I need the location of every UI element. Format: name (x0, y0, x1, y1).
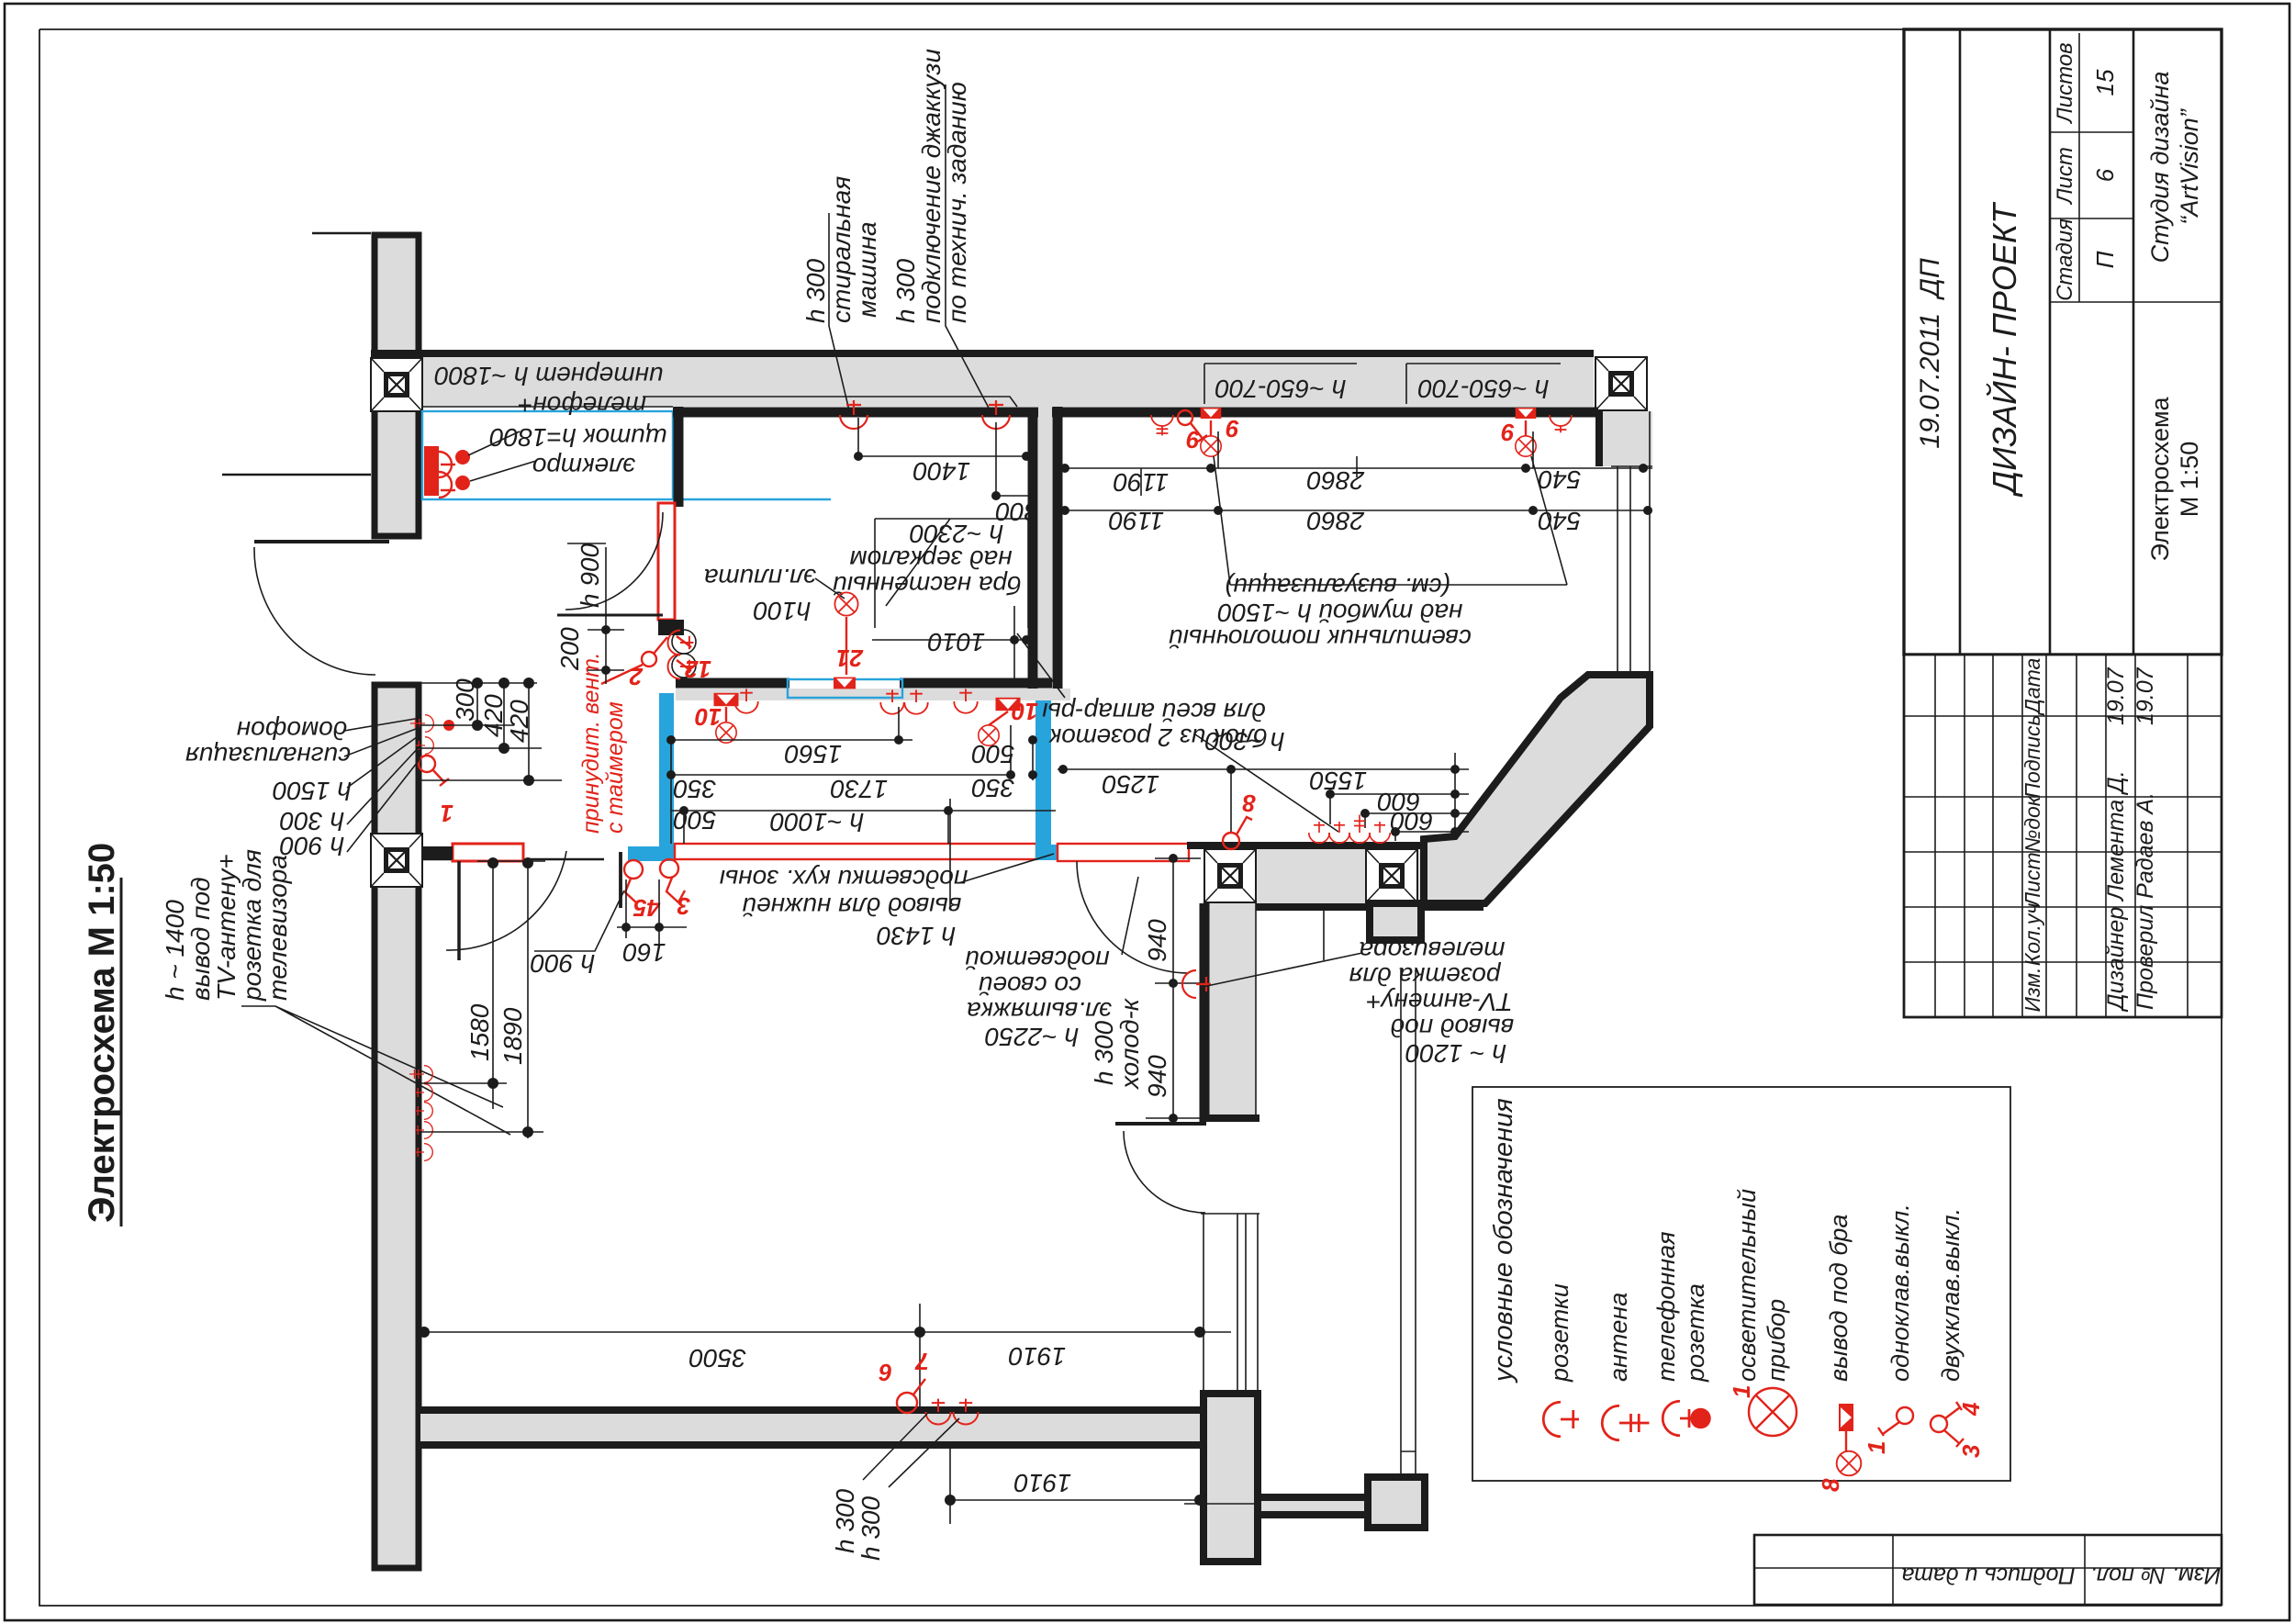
svg-text:эл.плита: эл.плита (704, 564, 816, 592)
svg-text:6: 6 (2091, 168, 2119, 182)
svg-text:розетки: розетки (1546, 1283, 1573, 1383)
svg-text:вывод под: вывод под (1391, 1014, 1515, 1042)
svg-text:1250: 1250 (1102, 770, 1159, 799)
svg-text:одноклав.выкл.: одноклав.выкл. (1886, 1204, 1914, 1382)
svg-text:для всей аппар-ры: для всей аппар-ры (1042, 698, 1266, 726)
svg-text:h ~ 1200: h ~ 1200 (1405, 1039, 1506, 1068)
svg-text:940: 940 (1143, 919, 1171, 962)
svg-text:условные обозначения: условные обозначения (1489, 1098, 1518, 1383)
svg-text:1: 1 (1863, 1441, 1890, 1454)
svg-text:домофон: домофон (237, 716, 348, 745)
svg-text:Подпись и дата: Подпись и дата (1901, 1562, 2075, 1588)
svg-text:h ~300: h ~300 (1204, 727, 1284, 756)
svg-text:бра настенный: бра настенный (833, 571, 1022, 599)
svg-text:h 900: h 900 (576, 543, 604, 608)
svg-text:1730: 1730 (830, 775, 888, 803)
svg-text:телефон+: телефон+ (518, 391, 646, 420)
svg-text:телевизора: телевизора (1360, 936, 1506, 965)
svg-text:ДИЗАЙН- ПРОЕКТ: ДИЗАЙН- ПРОЕКТ (1985, 201, 2023, 498)
svg-text:№док: №док (2021, 795, 2044, 852)
svg-text:интернет h ~1800: интернет h ~1800 (434, 362, 664, 390)
svg-text:Студия дизайна: Студия дизайна (2146, 72, 2174, 263)
svg-text:осветительный: осветительный (1733, 1189, 1761, 1382)
svg-text:7: 7 (914, 1348, 929, 1375)
svg-text:9: 9 (1501, 419, 1515, 446)
svg-text:со своей: со своей (979, 971, 1081, 1000)
svg-text:8: 8 (1817, 1478, 1844, 1492)
svg-text:1: 1 (441, 800, 453, 827)
svg-text:над тумбой h ~1500: над тумбой h ~1500 (1217, 599, 1462, 627)
svg-text:h 300: h 300 (856, 1496, 885, 1561)
svg-text:вывод под бра: вывод под бра (1825, 1215, 1853, 1382)
svg-text:вывод для нижней: вывод для нижней (742, 892, 961, 921)
svg-text:h ~1000: h ~1000 (770, 808, 864, 836)
svg-text:19.07: 19.07 (2103, 666, 2129, 725)
svg-text:600: 600 (1390, 807, 1433, 835)
svg-text:12: 12 (685, 655, 711, 683)
svg-text:8: 8 (1242, 790, 1256, 817)
svg-text:розетка: розетка (1682, 1283, 1709, 1383)
svg-text:телефонная: телефонная (1652, 1231, 1680, 1382)
svg-text:1: 1 (1728, 1385, 1755, 1398)
svg-text:h ~2300: h ~2300 (910, 520, 1003, 548)
svg-text:h 300: h 300 (1090, 1021, 1118, 1085)
svg-text:940: 940 (1143, 1055, 1171, 1098)
svg-text:Лист: Лист (2021, 852, 2044, 908)
svg-text:1400: 1400 (912, 457, 970, 486)
svg-text:h ~650-700: h ~650-700 (1215, 375, 1346, 403)
svg-text:розетка для: розетка для (1349, 962, 1502, 991)
svg-text:h ~650-700: h ~650-700 (1417, 375, 1549, 403)
svg-text:Изм. № пол.: Изм. № пол. (2090, 1562, 2221, 1588)
svg-text:Дата: Дата (2021, 658, 2044, 717)
svg-text:500: 500 (673, 806, 716, 834)
svg-text:1910: 1910 (1013, 1469, 1071, 1497)
svg-text:2860: 2860 (1306, 507, 1365, 535)
svg-text:ТV-антену+: ТV-антену+ (1366, 988, 1513, 1016)
svg-text:9: 9 (1186, 426, 1200, 454)
svg-text:Изм.: Изм. (2021, 967, 2044, 1012)
svg-text:прибор: прибор (1763, 1299, 1790, 1382)
svg-text:щиток h=1800: щиток h=1800 (489, 423, 667, 452)
svg-text:1580: 1580 (465, 1003, 494, 1061)
svg-text:h 300: h 300 (891, 259, 920, 323)
svg-text:над зеркалом: над зеркалом (849, 545, 1012, 574)
svg-text:h 1500: h 1500 (273, 777, 352, 805)
svg-text:540: 540 (1538, 465, 1581, 494)
svg-text:3: 3 (677, 892, 690, 920)
svg-text:с таймером: с таймером (602, 701, 628, 834)
svg-text:Подпись: Подпись (2021, 714, 2044, 798)
svg-text:15: 15 (2091, 69, 2119, 95)
svg-text:Электросхема М 1:50: Электросхема М 1:50 (82, 843, 122, 1223)
svg-text:подключение джаккузи: подключение джаккузи (917, 49, 946, 323)
svg-text:45: 45 (633, 894, 661, 922)
svg-text:200: 200 (555, 627, 584, 671)
svg-text:1910: 1910 (1008, 1342, 1066, 1371)
svg-text:1890: 1890 (498, 1007, 527, 1065)
svg-text:6: 6 (879, 1359, 892, 1386)
svg-text:h 300: h 300 (801, 259, 830, 323)
svg-text:3500: 3500 (688, 1344, 746, 1372)
svg-text:19.07: 19.07 (2133, 666, 2158, 725)
svg-text:TV-антену+: TV-антену+ (212, 854, 241, 1001)
svg-text:540: 540 (1538, 507, 1581, 535)
svg-text:по технич. заданию: по технич. заданию (943, 82, 971, 323)
svg-text:Стадия: Стадия (2053, 218, 2077, 301)
svg-text:принудит. вент.: принудит. вент. (578, 652, 604, 834)
svg-text:холод-к: холод-к (1115, 997, 1144, 1091)
svg-text:h 900: h 900 (531, 949, 595, 978)
svg-text:21: 21 (836, 644, 864, 672)
svg-text:антена: антена (1605, 1293, 1632, 1382)
svg-text:розетка для: розетка для (238, 849, 266, 1002)
svg-text:1560: 1560 (784, 740, 842, 768)
svg-text:подсветки кух. зоны: подсветки кух. зоны (719, 865, 968, 893)
svg-text:10: 10 (1012, 698, 1038, 725)
svg-text:1550: 1550 (1309, 767, 1367, 795)
svg-text:электро: электро (532, 453, 635, 481)
svg-text:(см. визуализации): (см. визуализации) (1225, 573, 1450, 601)
svg-text:350: 350 (673, 775, 716, 803)
svg-text:стиральная: стиральная (827, 176, 856, 323)
svg-text:телевизора: телевизора (263, 855, 292, 1001)
svg-text:1010: 1010 (927, 628, 985, 656)
svg-text:Дизайнер Лемента Д.: Дизайнер Лемента Д. (2103, 770, 2129, 1013)
svg-text:светильник потолочный: светильник потолочный (1169, 624, 1472, 653)
svg-text:двухклав.выкл.: двухклав.выкл. (1937, 1208, 1965, 1382)
svg-text:10: 10 (695, 703, 722, 731)
svg-text:h ~2250: h ~2250 (985, 1023, 1079, 1051)
svg-text:Электросхема: Электросхема (2146, 396, 2174, 561)
svg-text:М 1:50: М 1:50 (2176, 442, 2203, 518)
svg-text:h100: h100 (753, 597, 811, 625)
svg-text:h 300: h 300 (831, 1489, 859, 1553)
svg-text:9: 9 (1226, 415, 1239, 442)
svg-text:машина: машина (853, 221, 881, 318)
svg-text:Листов: Листов (2053, 42, 2077, 124)
svg-text:3: 3 (1957, 1444, 1985, 1458)
svg-text:“ArtVision”: “ArtVision” (2176, 108, 2203, 225)
svg-text:h ~ 1400: h ~ 1400 (161, 900, 189, 1001)
svg-text:h 300: h 300 (280, 807, 344, 835)
svg-text:подсветкой: подсветкой (965, 946, 1110, 974)
svg-text:Лист: Лист (2053, 147, 2077, 206)
svg-text:350: 350 (971, 774, 1014, 802)
svg-text:вывод под: вывод под (186, 877, 215, 1001)
svg-text:500: 500 (971, 740, 1014, 768)
svg-text:Проверил Радаев А.: Проверил Радаев А. (2133, 792, 2158, 1010)
svg-text:19.07.2011 ДП: 19.07.2011 ДП (1915, 258, 1945, 449)
svg-text:П: П (2091, 251, 2119, 268)
svg-text:Кол.уч: Кол.уч (2021, 903, 2044, 967)
svg-text:4: 4 (1957, 1402, 1985, 1417)
svg-text:h 1430: h 1430 (877, 922, 956, 950)
svg-text:1190: 1190 (1108, 507, 1164, 535)
svg-text:сигнализация: сигнализация (185, 742, 351, 770)
